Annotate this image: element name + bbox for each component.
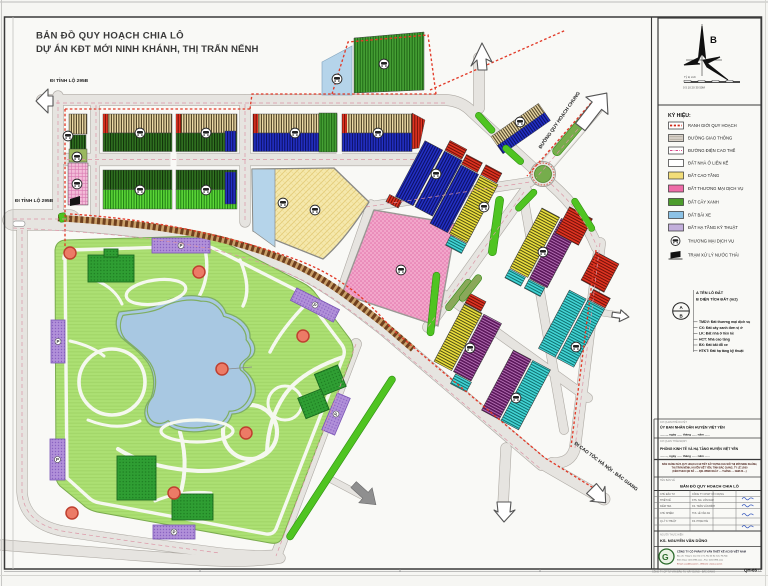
svg-text:KS. TRẦN VĂN BÌNH: KS. TRẦN VĂN BÌNH	[692, 505, 715, 508]
svg-text:HTKT: Đất hạ tầng kỹ thuật: HTKT: Đất hạ tầng kỹ thuật	[699, 349, 744, 353]
svg-text:LK: Đất nhà ở liền kề: LK: Đất nhà ở liền kề	[699, 332, 734, 336]
svg-text:B DIỆN TÍCH ĐẤT (m2): B DIỆN TÍCH ĐẤT (m2)	[696, 297, 738, 302]
svg-text:ỦY BAN NHÂN DÂN HUYỆN VIỆT YÊN: ỦY BAN NHÂN DÂN HUYỆN VIỆT YÊN	[660, 425, 725, 430]
svg-text:HCT: Nhà cao tầng: HCT: Nhà cao tầng	[699, 337, 730, 341]
svg-text:0 5 10 20 30: 0 5 10 20 30 50M	[683, 86, 705, 90]
svg-text:KS. NGUYỄN VĂN DŨNG: KS. NGUYỄN VĂN DŨNG	[660, 538, 707, 543]
svg-text:ĐẤT CÂY XANH: ĐẤT CÂY XANH	[688, 200, 719, 205]
svg-text:CHỦ ĐẦU TƯ: CHỦ ĐẦU TƯ	[660, 493, 675, 496]
svg-text:CHỦ NHIỆM: CHỦ NHIỆM	[660, 512, 674, 515]
svg-text:DỰ ÁN KĐT MỚI NINH KHÁNH, THỊ: DỰ ÁN KĐT MỚI NINH KHÁNH, THỊ TRẤN NẾNH	[36, 43, 259, 55]
svg-text:NGƯỜI THỰC HIỆN: NGƯỜI THỰC HIỆN	[660, 534, 684, 537]
svg-text:ĐẤT HẠ TẦNG KỸ THUẬT: ĐẤT HẠ TẦNG KỸ THUẬT	[688, 225, 738, 230]
svg-text:Email: acud@acud.vn - Website:: Email: acud@acud.vn - Website: www.acud.…	[677, 563, 723, 566]
svg-text:Q.LÝ K.THUẬT: Q.LÝ K.THUẬT	[660, 520, 677, 523]
svg-text:P: P	[56, 339, 59, 344]
svg-text:TÊN BẢN VẼ: TÊN BẢN VẼ	[660, 479, 675, 482]
svg-text:CÔNG TY CP ĐT XÂY DỰNG: CÔNG TY CP ĐT XÂY DỰNG	[692, 493, 724, 496]
svg-text:KÝ HIỆU:: KÝ HIỆU:	[668, 111, 691, 119]
svg-text:CX: Đất cây xanh đơn vị ở: CX: Đất cây xanh đơn vị ở	[699, 326, 743, 330]
svg-text:PHÒNG KINH TẾ VÀ HẠ TẦNG HUYỆN: PHÒNG KINH TẾ VÀ HẠ TẦNG HUYỆN VIỆT YÊN	[660, 446, 739, 451]
svg-text:KS. PHẠM HẢI: KS. PHẠM HẢI	[692, 520, 708, 523]
svg-text:THỊ TRẤN NẾNH, HUYỆN VIỆT YÊN,: THỊ TRẤN NẾNH, HUYỆN VIỆT YÊN, TỈNH BẮC …	[672, 467, 748, 470]
svg-text:ThS. LÊ VĂN AN: ThS. LÊ VĂN AN	[692, 512, 710, 515]
svg-text:ĐƯỜNG GIAO THÔNG: ĐƯỜNG GIAO THÔNG	[688, 136, 732, 141]
svg-text:P: P	[56, 457, 59, 462]
svg-text:Địa chỉ: Tầng 5, tòa nhà CT1,: Địa chỉ: Tầng 5, tòa nhà CT1, KU đô thị …	[677, 555, 728, 558]
svg-text:ĐƯỜNG ĐIỆN CAO THẾ: ĐƯỜNG ĐIỆN CAO THẾ	[688, 148, 736, 153]
svg-text:THIẾT KẾ: THIẾT KẾ	[660, 499, 671, 502]
svg-text:Tỷ lệ xích: Tỷ lệ xích	[684, 75, 696, 79]
svg-text:BX: Đất bãi đỗ xe: BX: Đất bãi đỗ xe	[699, 343, 728, 347]
svg-text:CƠ QUAN THẨM ĐỊNH: CƠ QUAN THẨM ĐỊNH	[660, 440, 687, 443]
svg-text:QH-65 □: QH-65 □	[744, 568, 761, 573]
svg-text:Điện thoại: 024.3783.xxxx - Fa: Điện thoại: 024.3783.xxxx - Fax: 024.378…	[677, 559, 724, 562]
svg-text:G: G	[662, 552, 669, 562]
svg-text:........., ngày ...... tháng .: ........., ngày ...... tháng ...... năm …	[660, 454, 710, 458]
svg-text:TRẠM XỬ LÝ NƯỚC THẢI: TRẠM XỬ LÝ NƯỚC THẢI	[688, 253, 739, 258]
svg-text:CÔNG TY CP TƯ VẤN ĐẦU TƯ XÂY D: CÔNG TY CP TƯ VẤN ĐẦU TƯ XÂY DỰNG - BẮC …	[652, 571, 715, 574]
svg-text:ĐẤT BÃI XE: ĐẤT BÃI XE	[688, 213, 711, 218]
svg-text:P: P	[172, 530, 175, 535]
svg-text:BẢN CHỈNH SỬA QUY HOẠCH CHI TI: BẢN CHỈNH SỬA QUY HOẠCH CHI TIẾT XÂY DỰN…	[662, 463, 757, 466]
svg-text:THƯƠNG MẠI DỊCH VỤ: THƯƠNG MẠI DỊCH VỤ	[688, 239, 734, 244]
svg-text:ĐẤT THƯƠNG MẠI DỊCH VỤ: ĐẤT THƯƠNG MẠI DỊCH VỤ	[688, 186, 743, 191]
svg-text:KIỂM TRA: KIỂM TRA	[660, 505, 672, 508]
svg-text:BẢN ĐỒ QUY HOẠCH CHIA LÔ: BẢN ĐỒ QUY HOẠCH CHIA LÔ	[680, 484, 739, 489]
svg-text:KTS. NG. VĂN NAM: KTS. NG. VĂN NAM	[692, 499, 714, 502]
svg-text:B: B	[710, 35, 717, 46]
svg-text:BẢN ĐỒ QUY HOẠCH CHIA LÔ: BẢN ĐỒ QUY HOẠCH CHIA LÔ	[36, 30, 184, 42]
svg-text:ĐẤT NHÀ Ở LIÊN KẾ: ĐẤT NHÀ Ở LIÊN KẾ	[688, 161, 728, 166]
svg-text:ĐẤT CAO TẦNG: ĐẤT CAO TẦNG	[688, 173, 719, 178]
svg-text:A TÊN LÔ ĐẤT: A TÊN LÔ ĐẤT	[696, 290, 724, 295]
svg-text:TMDV: Đất thương mại dịch vụ: TMDV: Đất thương mại dịch vụ	[699, 320, 750, 324]
svg-text:........., ngày ...... tháng .: ........., ngày ...... tháng ...... năm …	[660, 433, 710, 437]
svg-text:(KÈM THEO QĐ SỐ ....../QĐ-UBND: (KÈM THEO QĐ SỐ ....../QĐ-UBND NGÀY ....…	[672, 470, 746, 473]
svg-text:CƠ QUAN PHÊ DUYỆT: CƠ QUAN PHÊ DUYỆT	[660, 421, 687, 424]
svg-text:RANH GIỚI QUY HOẠCH: RANH GIỚI QUY HOẠCH	[688, 123, 737, 128]
